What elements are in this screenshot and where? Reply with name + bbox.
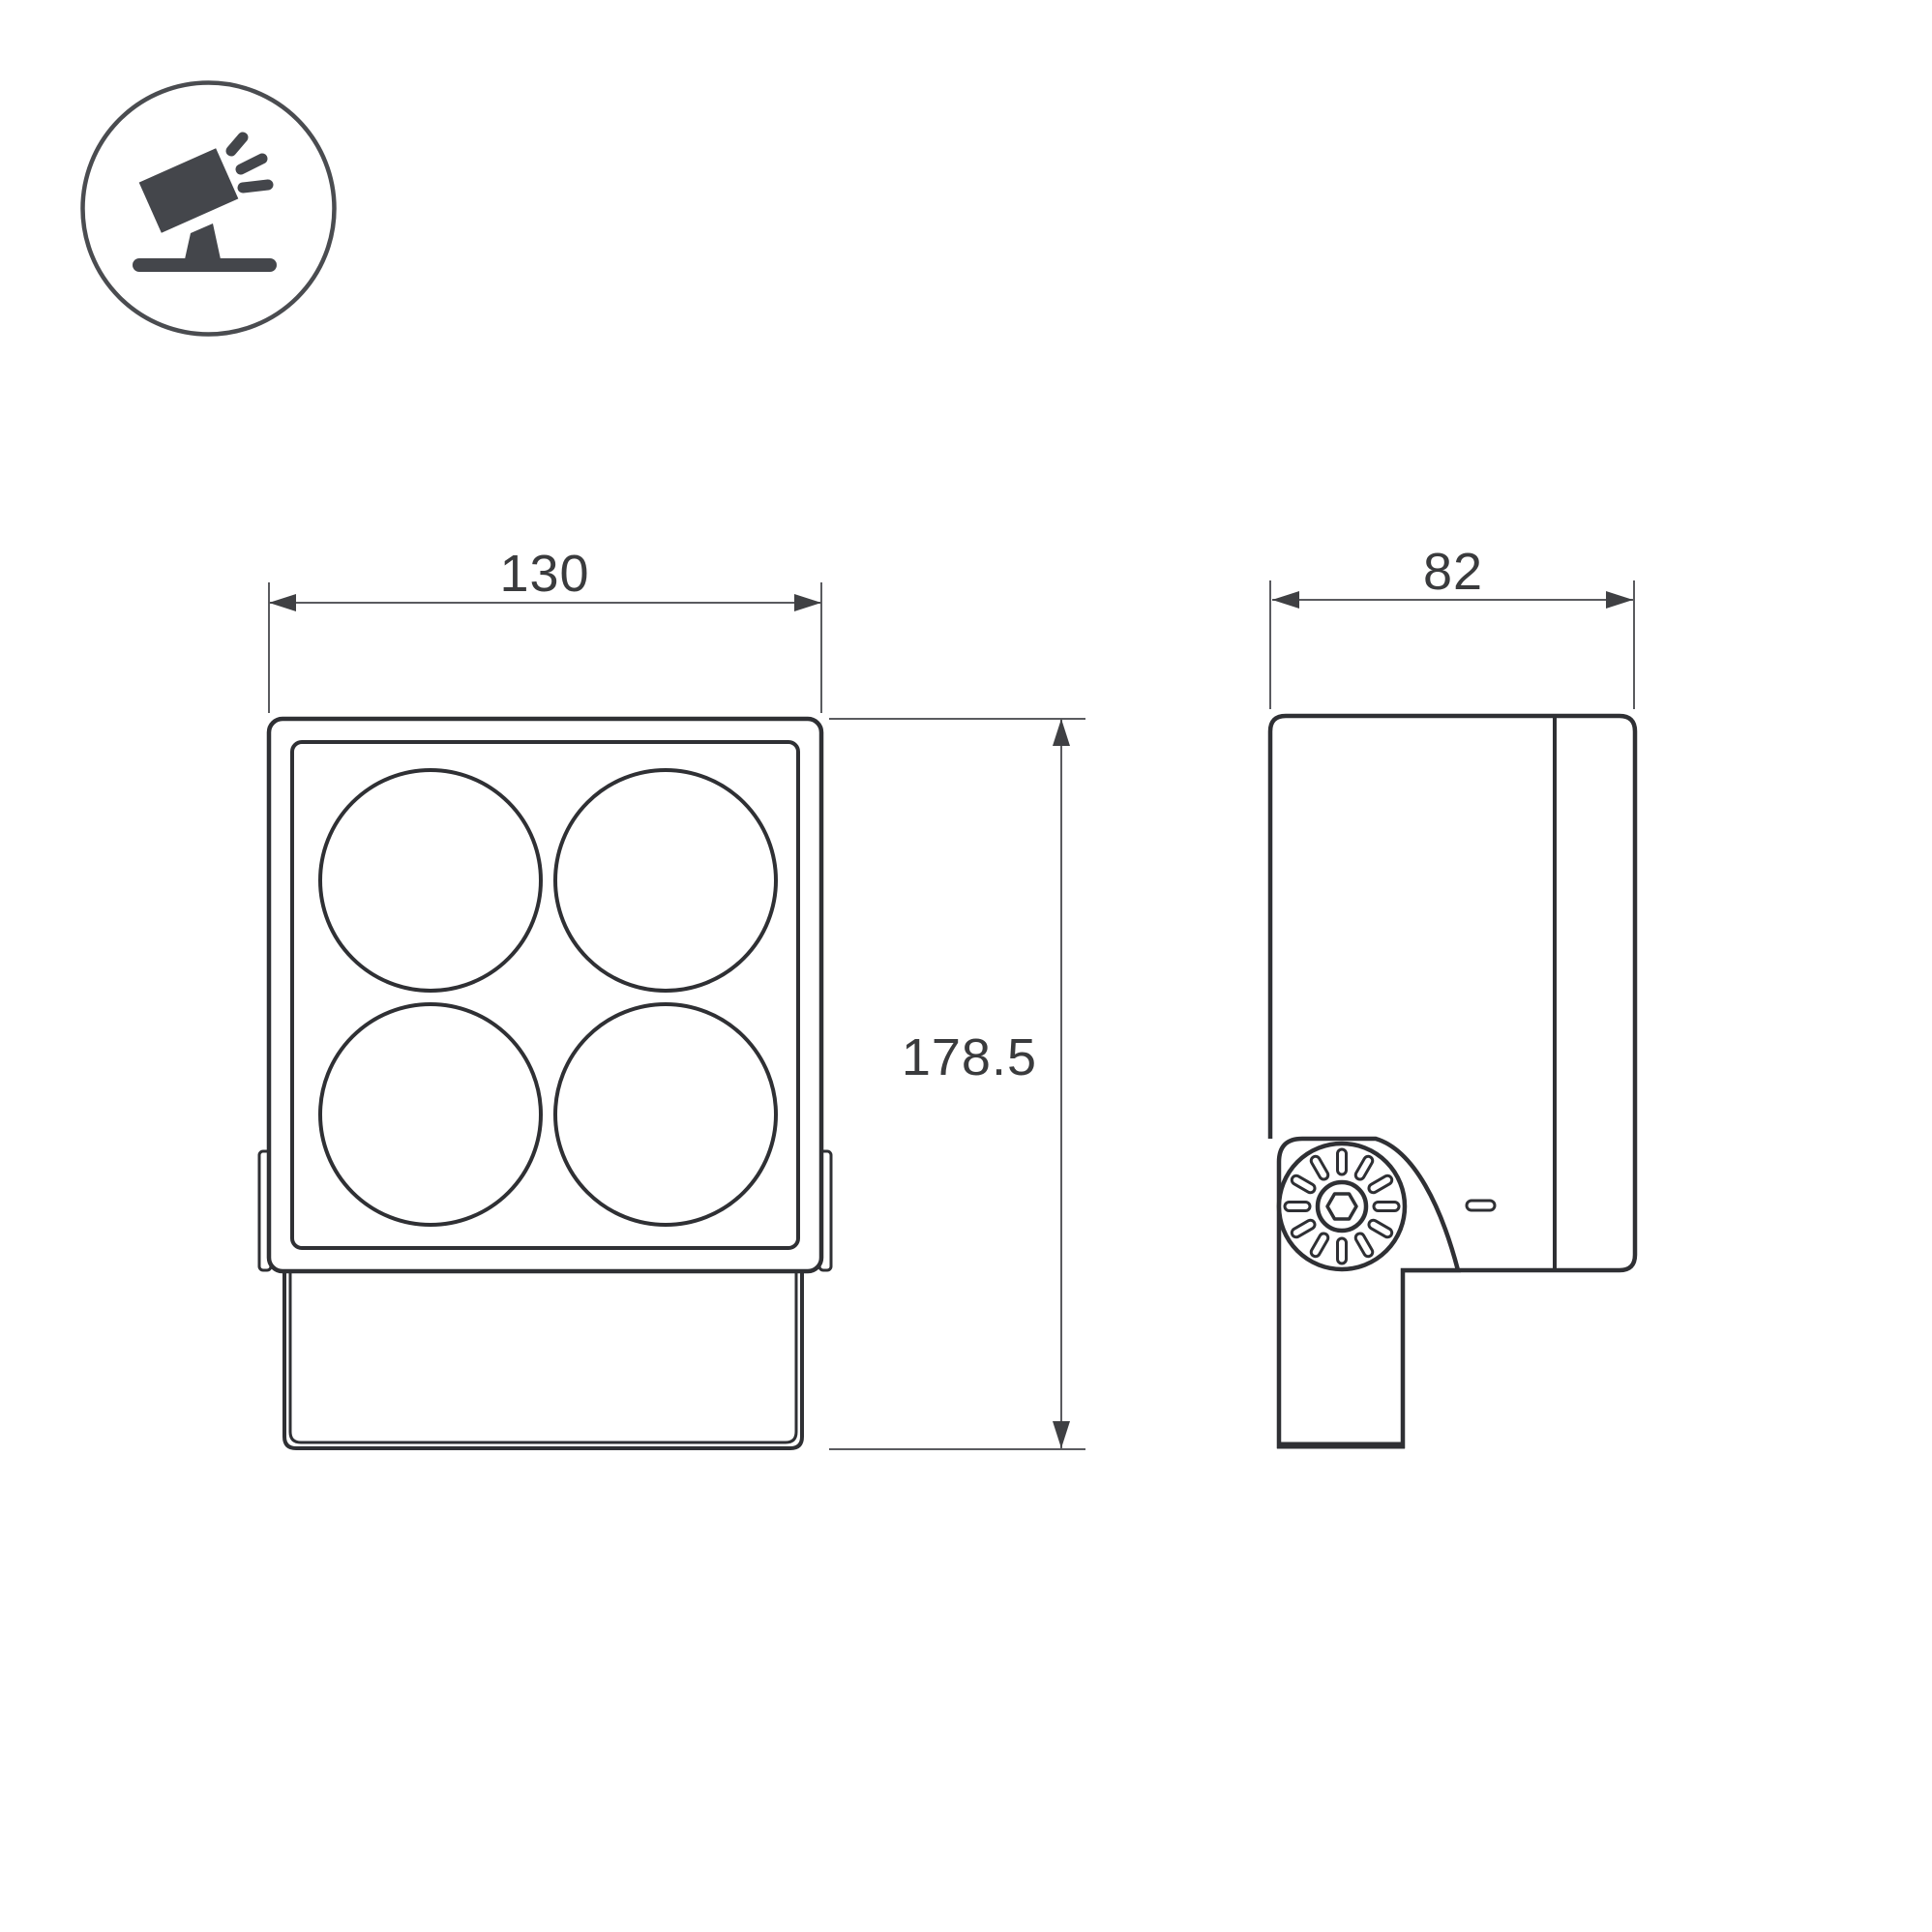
arrowhead-right [1606, 591, 1633, 609]
dimension-label-side-depth: 82 [1423, 546, 1483, 598]
arrowhead-right [794, 594, 821, 611]
arrowhead-bottom [1053, 1421, 1070, 1448]
hex-screw-socket [1327, 1194, 1356, 1219]
front-view [259, 719, 831, 1448]
drawing-sheet: 130 82 178.5 [0, 0, 1932, 1932]
technical-drawing [0, 0, 1932, 1932]
side-view [1270, 716, 1635, 1446]
arrowhead-left [269, 594, 296, 611]
arrowhead-top [1053, 719, 1070, 746]
front-base-box-outer [284, 1273, 802, 1448]
side-body-slot [1467, 1201, 1495, 1210]
arrowhead-left [1272, 591, 1299, 609]
dimension-label-front-width: 130 [499, 548, 589, 600]
dimension-label-height: 178.5 [902, 1031, 1037, 1084]
